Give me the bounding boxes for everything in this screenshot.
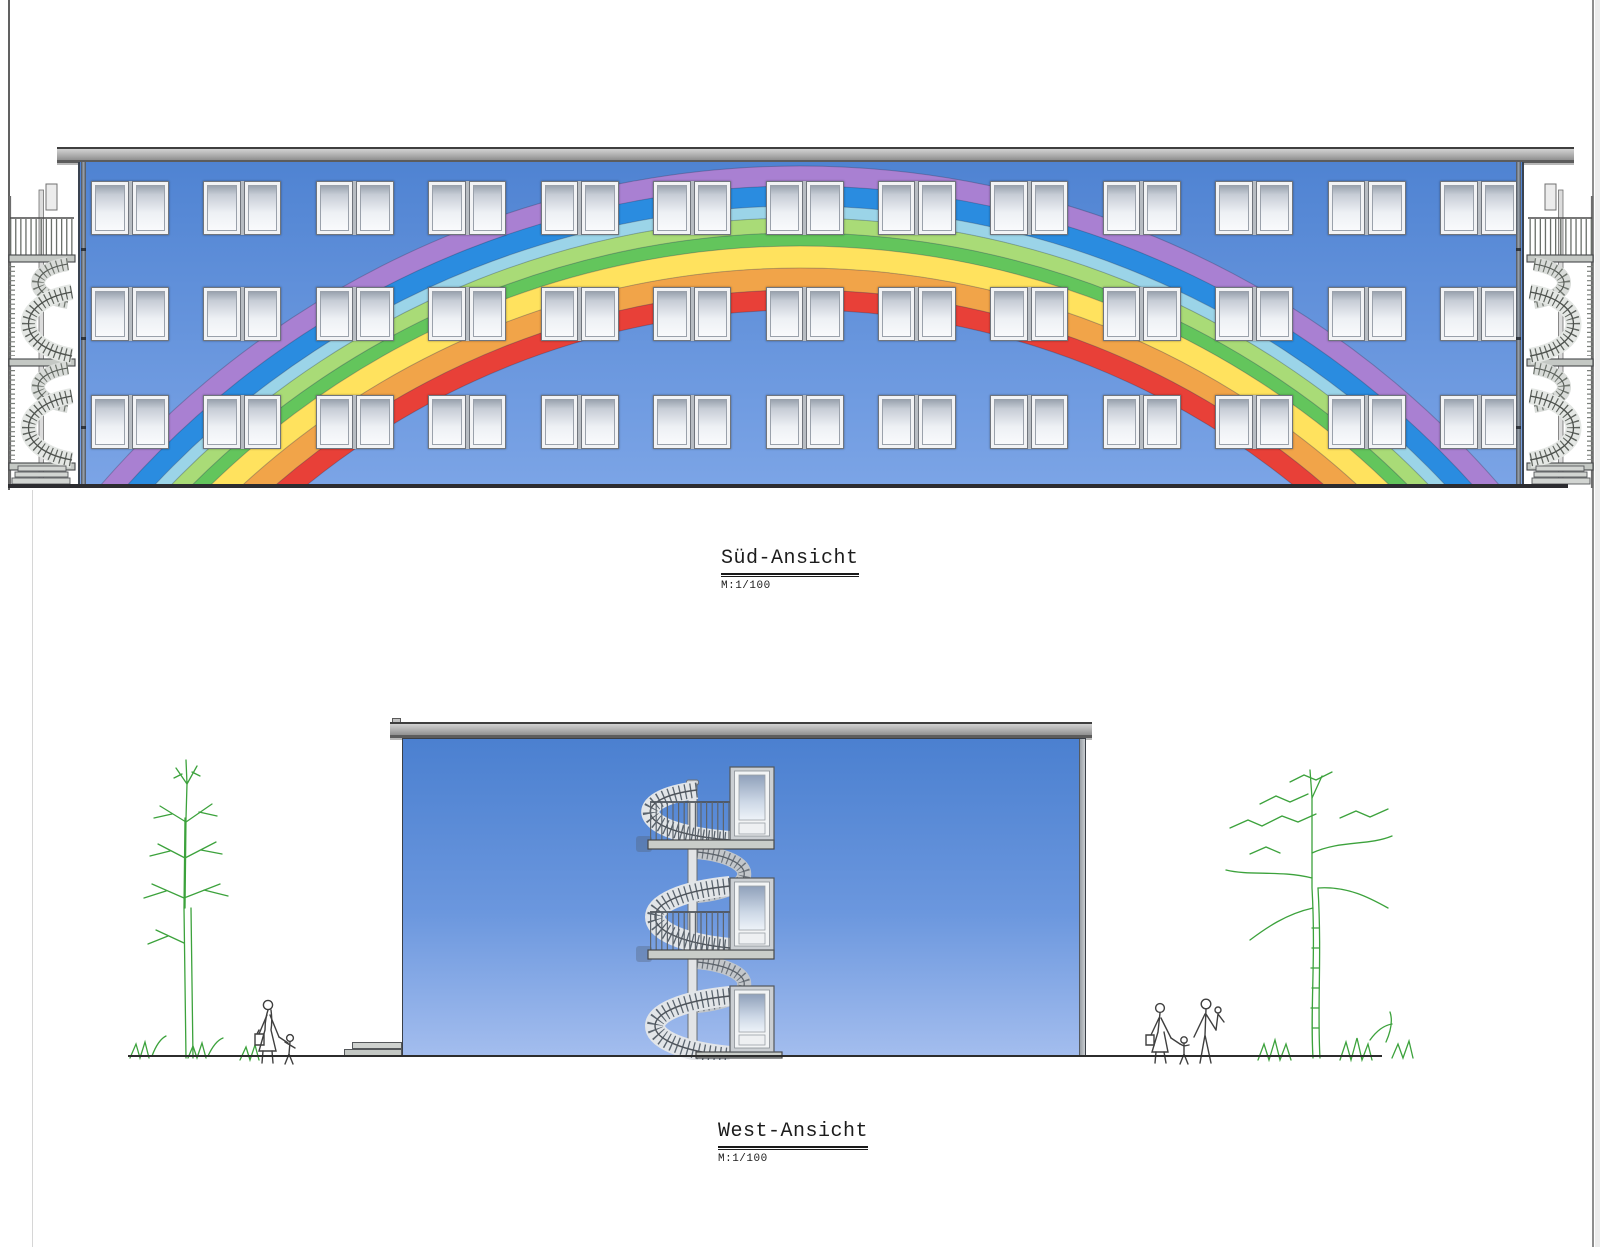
window-sash <box>203 287 241 341</box>
window-glass <box>1035 185 1065 231</box>
window-glass <box>1332 399 1362 445</box>
window-pair <box>316 181 394 235</box>
window-glass <box>1485 291 1515 337</box>
window-glass <box>432 185 462 231</box>
window-pair <box>91 395 169 449</box>
window-glass <box>360 185 390 231</box>
window-sash <box>203 395 241 449</box>
window-glass <box>1485 185 1515 231</box>
window-glass <box>1260 291 1290 337</box>
window-glass <box>473 185 503 231</box>
window-glass <box>248 291 278 337</box>
window-glass <box>1332 185 1362 231</box>
tree-right-icon <box>1226 770 1392 1058</box>
window-sash <box>918 395 956 449</box>
window-sash <box>1481 287 1519 341</box>
window-pair <box>541 287 619 341</box>
window-glass <box>95 291 125 337</box>
window-pair <box>766 395 844 449</box>
window-sash <box>694 395 732 449</box>
window-sash <box>990 395 1028 449</box>
window-glass <box>1372 399 1402 445</box>
window-glass <box>1372 291 1402 337</box>
window-glass <box>95 399 125 445</box>
west-roof <box>390 722 1092 738</box>
title-underline <box>721 573 859 577</box>
window-sash <box>1368 287 1406 341</box>
window-sash <box>653 395 691 449</box>
window-glass <box>698 291 728 337</box>
window-glass <box>207 291 237 337</box>
south-view-title: Süd-Ansicht <box>721 547 859 570</box>
window-glass <box>770 291 800 337</box>
window-glass <box>360 399 390 445</box>
window-glass <box>810 399 840 445</box>
window-glass <box>545 185 575 231</box>
window-glass <box>320 291 350 337</box>
window-glass <box>1485 399 1515 445</box>
sheet-edge-strip <box>1595 0 1600 1247</box>
window-glass <box>1107 399 1137 445</box>
window-glass <box>922 291 952 337</box>
spiral-staircase-right-icon <box>1524 166 1594 488</box>
window-glass <box>585 399 615 445</box>
window-sash <box>1328 181 1366 235</box>
window-glass <box>657 291 687 337</box>
window-sash <box>878 287 916 341</box>
window-sash <box>244 287 282 341</box>
window-sash <box>878 181 916 235</box>
window-sash <box>91 395 129 449</box>
window-pair <box>878 395 956 449</box>
window-pair <box>1103 287 1181 341</box>
window-pair <box>1215 287 1293 341</box>
window-sash <box>1031 395 1069 449</box>
sheet-border-left-lower <box>32 490 33 1247</box>
window-sash <box>1256 181 1294 235</box>
window-glass <box>1444 399 1474 445</box>
window-pair <box>990 287 1068 341</box>
window-sash <box>203 181 241 235</box>
window-glass <box>585 185 615 231</box>
window-pair <box>203 287 281 341</box>
window-sash <box>428 181 466 235</box>
window-pair <box>990 181 1068 235</box>
window-sash <box>990 287 1028 341</box>
window-sash <box>1143 395 1181 449</box>
window-sash <box>1215 395 1253 449</box>
window-pair <box>1328 395 1406 449</box>
window-sash <box>1143 287 1181 341</box>
window-pair <box>91 287 169 341</box>
window-glass <box>207 399 237 445</box>
window-sash <box>316 287 354 341</box>
west-ground-line <box>128 1055 1382 1057</box>
window-glass <box>810 185 840 231</box>
title-underline <box>718 1146 868 1150</box>
window-pair <box>316 287 394 341</box>
window-glass <box>136 185 166 231</box>
window-pair <box>1215 181 1293 235</box>
window-glass <box>95 185 125 231</box>
window-glass <box>1260 399 1290 445</box>
window-sash <box>1143 181 1181 235</box>
window-sash <box>766 395 804 449</box>
window-glass <box>360 291 390 337</box>
window-sash <box>469 287 507 341</box>
window-glass <box>1219 185 1249 231</box>
window-sash <box>1031 181 1069 235</box>
window-glass <box>1147 185 1177 231</box>
window-glass <box>320 185 350 231</box>
window-sash <box>1215 287 1253 341</box>
window-glass <box>1035 291 1065 337</box>
window-pair <box>653 395 731 449</box>
window-sash <box>1328 395 1366 449</box>
window-pair <box>766 287 844 341</box>
window-sash <box>1103 395 1141 449</box>
window-glass <box>1107 185 1137 231</box>
window-glass <box>248 399 278 445</box>
window-pair <box>653 181 731 235</box>
window-sash <box>694 287 732 341</box>
window-sash <box>132 287 170 341</box>
window-sash <box>694 181 732 235</box>
window-sash <box>469 181 507 235</box>
window-sash <box>1031 287 1069 341</box>
window-sash <box>356 287 394 341</box>
window-pair <box>316 395 394 449</box>
window-sash <box>990 181 1028 235</box>
window-sash <box>244 395 282 449</box>
window-sash <box>918 181 956 235</box>
west-scale-note: M:1/100 <box>718 1153 868 1165</box>
window-sash <box>1481 181 1519 235</box>
window-glass <box>545 291 575 337</box>
tree-left-icon <box>144 760 228 1058</box>
window-sash <box>1440 181 1478 235</box>
window-sash <box>878 395 916 449</box>
window-pair <box>1440 181 1518 235</box>
window-sash <box>766 287 804 341</box>
window-glass <box>473 399 503 445</box>
window-glass <box>1444 291 1474 337</box>
window-sash <box>581 181 619 235</box>
window-sash <box>244 181 282 235</box>
window-pair <box>878 287 956 341</box>
window-sash <box>766 181 804 235</box>
window-pair <box>653 287 731 341</box>
window-pair <box>1215 395 1293 449</box>
window-glass <box>1219 291 1249 337</box>
window-glass <box>770 399 800 445</box>
window-pair <box>91 181 169 235</box>
window-sash <box>581 287 619 341</box>
window-pair <box>541 395 619 449</box>
window-glass <box>1332 291 1362 337</box>
window-sash <box>1328 287 1366 341</box>
window-pair <box>1328 287 1406 341</box>
window-sash <box>1256 395 1294 449</box>
window-glass <box>882 185 912 231</box>
window-glass <box>585 291 615 337</box>
window-sash <box>806 287 844 341</box>
south-scale-note: M:1/100 <box>721 580 859 592</box>
window-sash <box>428 287 466 341</box>
window-sash <box>918 287 956 341</box>
window-sash <box>91 287 129 341</box>
window-sash <box>356 181 394 235</box>
window-sash <box>1256 287 1294 341</box>
window-glass <box>1107 291 1137 337</box>
window-glass <box>545 399 575 445</box>
window-sash <box>91 181 129 235</box>
window-sash <box>806 181 844 235</box>
window-sash <box>806 395 844 449</box>
window-sash <box>541 395 579 449</box>
window-pair <box>541 181 619 235</box>
window-glass <box>136 399 166 445</box>
window-glass <box>1444 185 1474 231</box>
window-glass <box>810 291 840 337</box>
window-glass <box>432 399 462 445</box>
downpipe-left-icon <box>81 162 86 484</box>
window-glass <box>1260 185 1290 231</box>
window-glass <box>994 185 1024 231</box>
window-glass <box>698 185 728 231</box>
spiral-staircase-left-icon <box>8 166 78 488</box>
bush-right-icon <box>1258 1012 1413 1060</box>
window-sash <box>1440 287 1478 341</box>
window-sash <box>1368 181 1406 235</box>
window-sash <box>653 181 691 235</box>
downpipe-right-icon <box>1516 162 1521 484</box>
window-glass <box>994 399 1024 445</box>
window-glass <box>657 185 687 231</box>
window-glass <box>698 399 728 445</box>
window-sash <box>1103 287 1141 341</box>
drawing-sheet: Süd-Ansicht M:1/100 <box>0 0 1600 1247</box>
window-sash <box>581 395 619 449</box>
south-ground-line <box>8 484 1568 488</box>
window-pair <box>428 395 506 449</box>
window-pair <box>428 287 506 341</box>
window-glass <box>994 291 1024 337</box>
south-facade <box>78 162 1524 484</box>
landscape-scene <box>100 758 1500 1068</box>
window-glass <box>657 399 687 445</box>
window-glass <box>922 399 952 445</box>
window-pair <box>203 181 281 235</box>
window-pair <box>1103 395 1181 449</box>
window-glass <box>1219 399 1249 445</box>
window-sash <box>1103 181 1141 235</box>
window-pair <box>1440 287 1518 341</box>
window-pair <box>1440 395 1518 449</box>
window-sash <box>316 395 354 449</box>
window-glass <box>320 399 350 445</box>
window-sash <box>316 181 354 235</box>
window-sash <box>469 395 507 449</box>
window-sash <box>356 395 394 449</box>
window-sash <box>653 287 691 341</box>
window-glass <box>770 185 800 231</box>
window-glass <box>1147 291 1177 337</box>
window-glass <box>1147 399 1177 445</box>
south-roof <box>57 147 1574 163</box>
window-sash <box>1440 395 1478 449</box>
window-glass <box>1035 399 1065 445</box>
window-pair <box>1103 181 1181 235</box>
south-view-label: Süd-Ansicht M:1/100 <box>721 547 859 592</box>
window-pair <box>990 395 1068 449</box>
window-pair <box>428 181 506 235</box>
window-sash <box>1481 395 1519 449</box>
window-glass <box>922 185 952 231</box>
window-pair <box>766 181 844 235</box>
window-sash <box>428 395 466 449</box>
window-pair <box>203 395 281 449</box>
window-glass <box>207 185 237 231</box>
window-glass <box>136 291 166 337</box>
window-glass <box>882 291 912 337</box>
window-glass <box>248 185 278 231</box>
window-pair <box>878 181 956 235</box>
window-sash <box>541 181 579 235</box>
window-sash <box>1215 181 1253 235</box>
window-sash <box>541 287 579 341</box>
window-glass <box>882 399 912 445</box>
window-glass <box>432 291 462 337</box>
west-view-title: West-Ansicht <box>718 1120 868 1143</box>
west-view-label: West-Ansicht M:1/100 <box>718 1120 868 1165</box>
window-pair <box>1328 181 1406 235</box>
window-glass <box>1372 185 1402 231</box>
window-sash <box>132 395 170 449</box>
window-sash <box>1368 395 1406 449</box>
window-sash <box>132 181 170 235</box>
window-glass <box>473 291 503 337</box>
